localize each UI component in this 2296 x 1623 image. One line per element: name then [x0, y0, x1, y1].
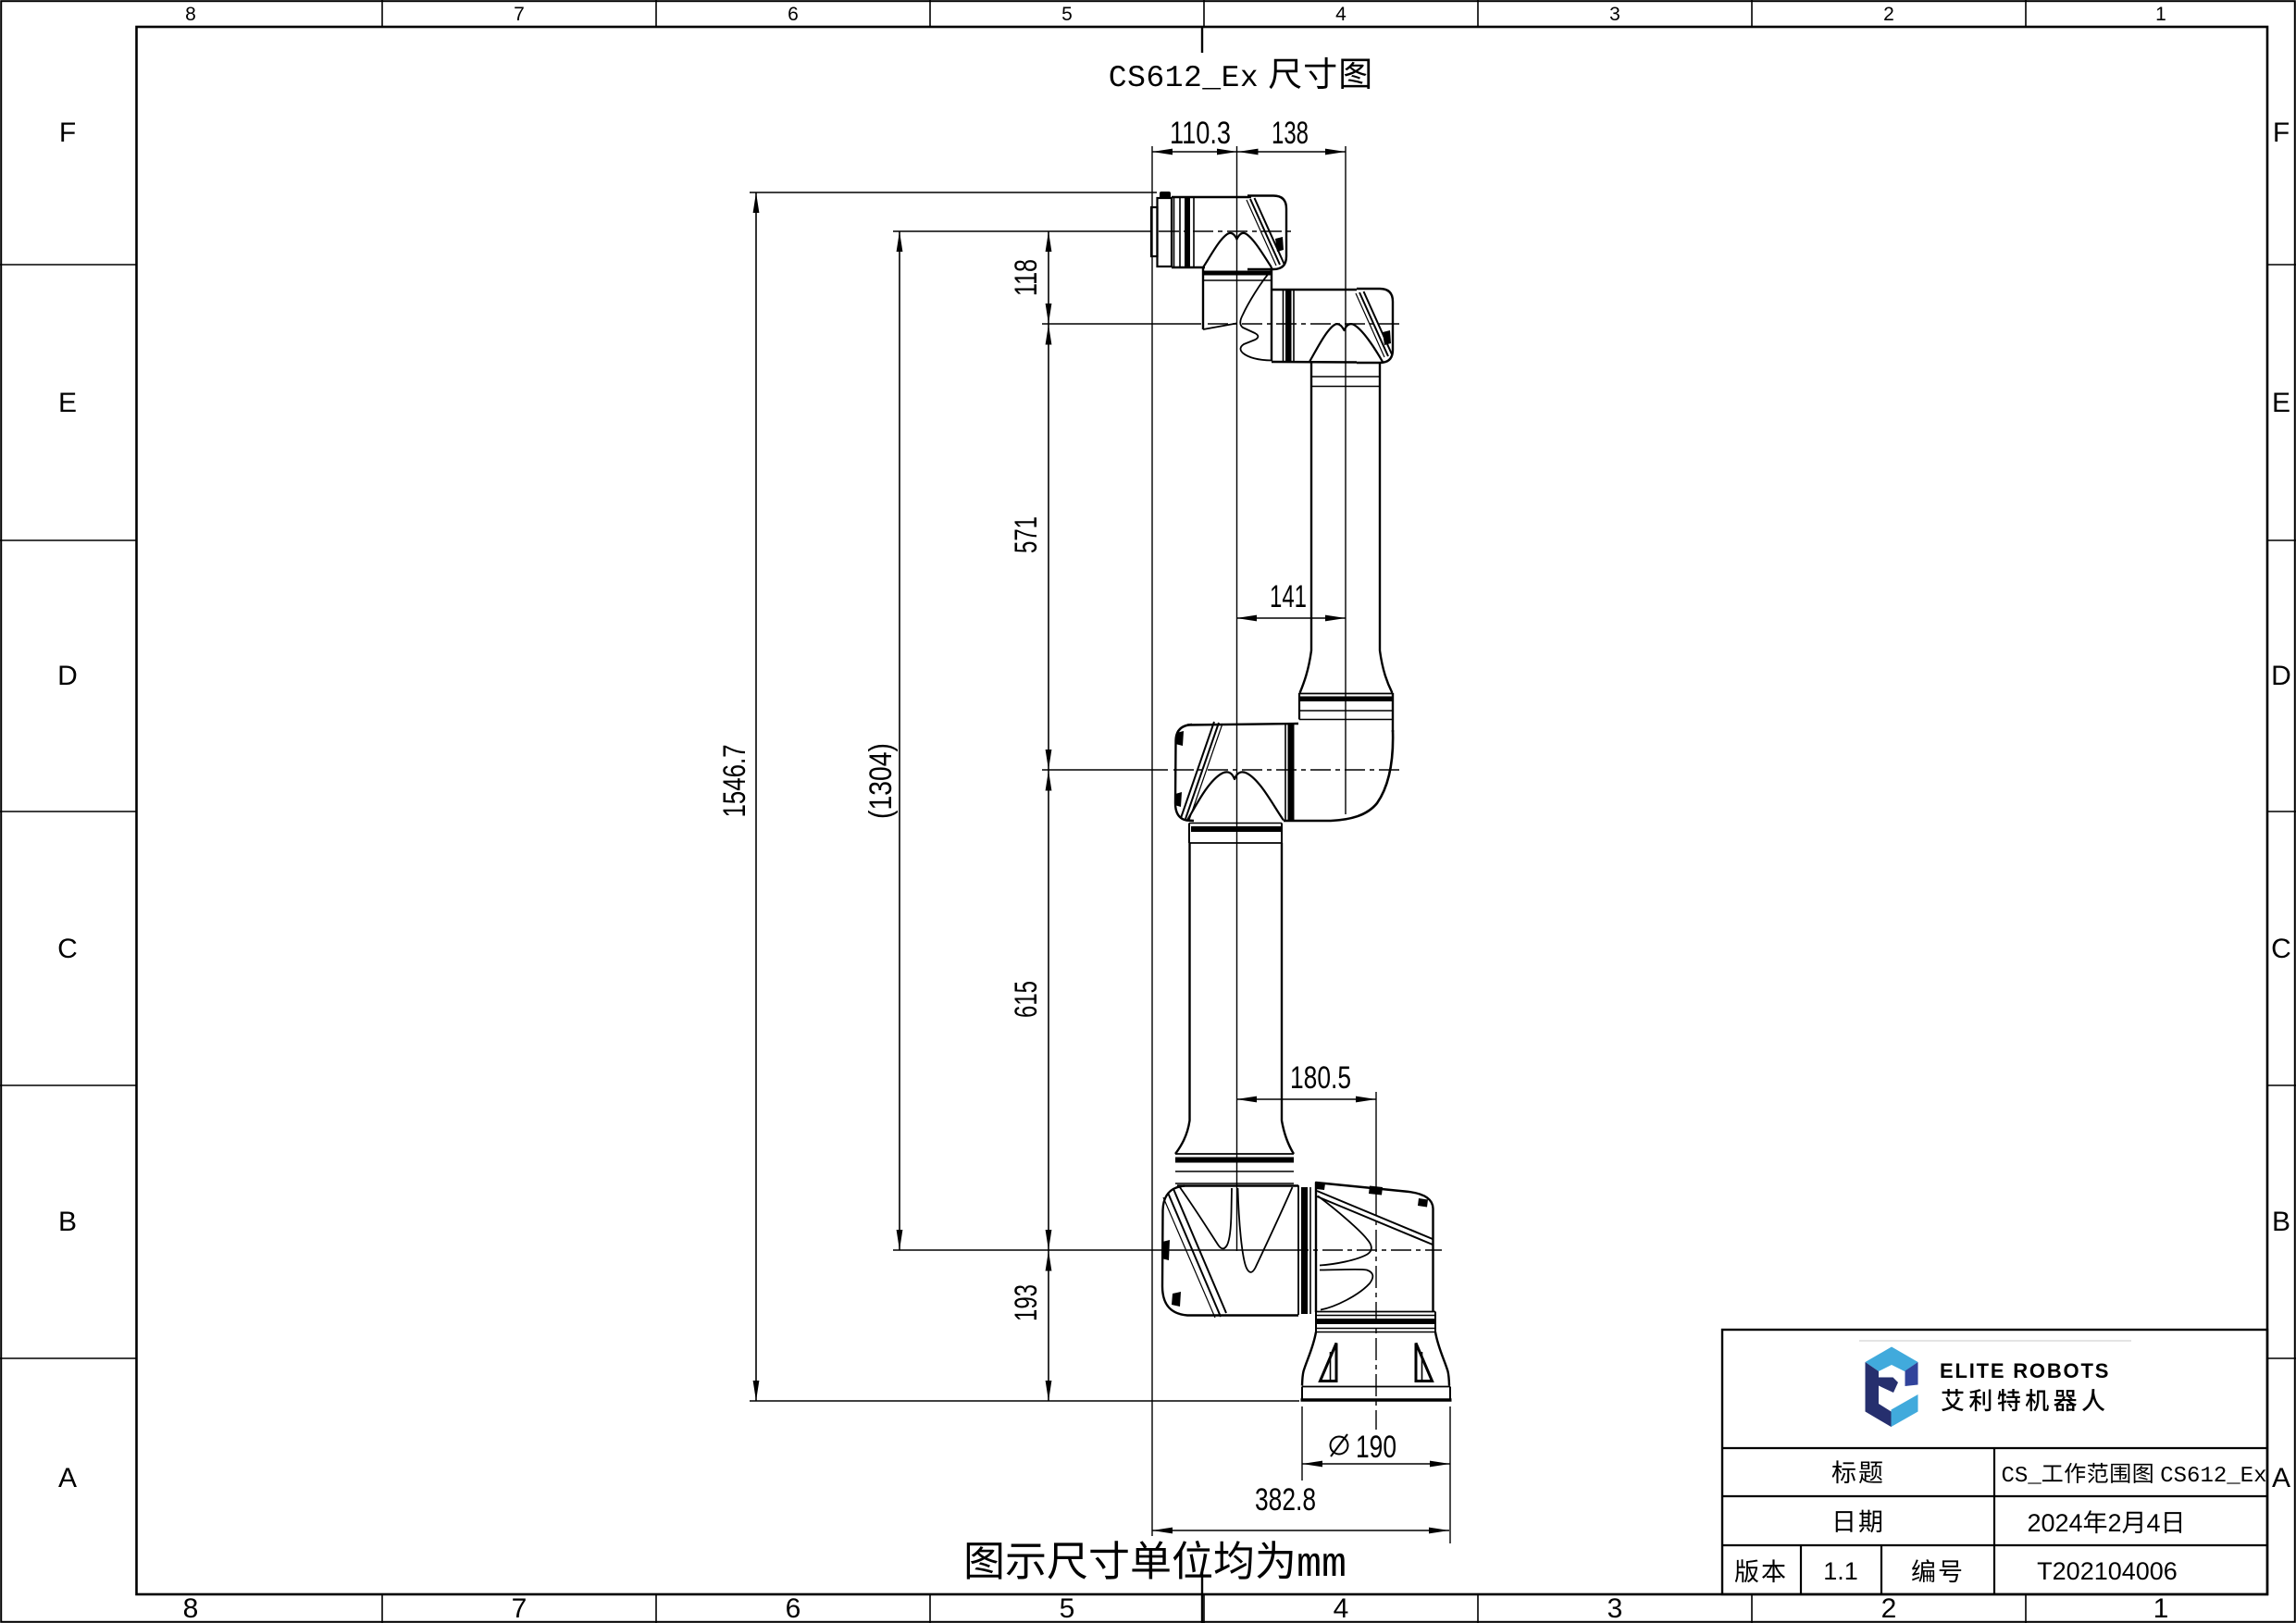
svg-text:190: 190 [1356, 1430, 1396, 1465]
svg-text:C: C [57, 934, 78, 964]
svg-text:382.8: 382.8 [1255, 1482, 1316, 1518]
svg-text:8: 8 [183, 1593, 199, 1623]
svg-text:T202104006: T202104006 [2037, 1557, 2178, 1585]
svg-text:5: 5 [1061, 4, 1073, 25]
svg-text:118: 118 [1009, 259, 1044, 296]
svg-text:110.3: 110.3 [1170, 116, 1231, 151]
svg-text:B: B [2272, 1207, 2290, 1237]
svg-text:1546.7: 1546.7 [717, 745, 752, 818]
svg-text:2: 2 [1883, 4, 1894, 25]
svg-text:1: 1 [2153, 1593, 2169, 1623]
svg-text:1.1: 1.1 [1823, 1557, 1858, 1585]
svg-text:141: 141 [1270, 579, 1307, 614]
svg-text:6: 6 [788, 4, 799, 25]
svg-text:193: 193 [1009, 1284, 1044, 1321]
svg-text:3: 3 [1607, 1593, 1623, 1623]
svg-text:(1304): (1304) [863, 743, 899, 819]
svg-text:B: B [58, 1207, 77, 1237]
svg-text:F: F [2273, 118, 2290, 148]
svg-text:5: 5 [1060, 1593, 1075, 1623]
svg-text:7: 7 [512, 1593, 527, 1623]
svg-text:615: 615 [1009, 981, 1044, 1018]
svg-text:4: 4 [1334, 1593, 1349, 1623]
svg-text:6: 6 [786, 1593, 801, 1623]
svg-text:A: A [58, 1463, 77, 1493]
svg-text:E: E [2272, 388, 2290, 418]
svg-text:D: D [2271, 661, 2291, 691]
svg-text:ELITE ROBOTS: ELITE ROBOTS [1940, 1359, 2110, 1382]
svg-text:D: D [57, 661, 78, 691]
svg-text:A: A [2272, 1463, 2290, 1493]
svg-text:3: 3 [1609, 4, 1620, 25]
svg-text:8: 8 [185, 4, 196, 25]
svg-text:E: E [58, 388, 77, 418]
svg-text:571: 571 [1009, 516, 1044, 553]
svg-text:4: 4 [1335, 4, 1347, 25]
svg-text:F: F [59, 118, 76, 148]
svg-text:1: 1 [2155, 4, 2166, 25]
svg-text:180.5: 180.5 [1290, 1060, 1351, 1096]
svg-text:2: 2 [1881, 1593, 1897, 1623]
svg-text:C: C [2271, 934, 2291, 964]
svg-text:7: 7 [514, 4, 525, 25]
svg-text:138: 138 [1272, 116, 1309, 151]
